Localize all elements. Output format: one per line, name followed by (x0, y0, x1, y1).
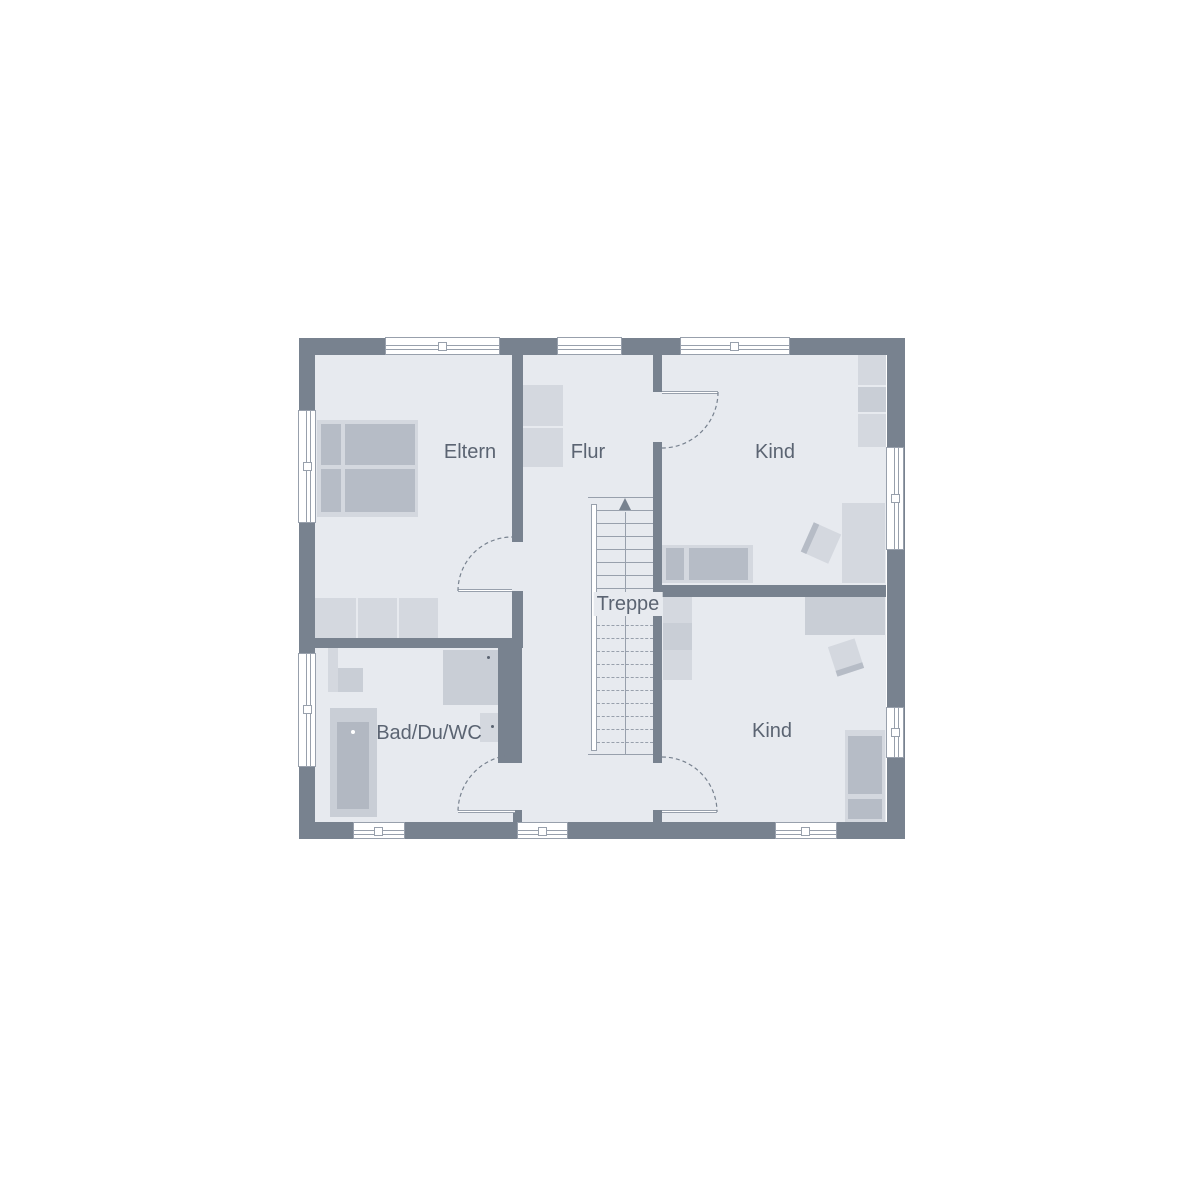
label-room-kind-top: Kind (755, 442, 795, 462)
window-handle-icon (438, 342, 447, 351)
toilet-wc (480, 713, 498, 742)
page-canvas: { "labels": { "eltern": "Eltern", "flur"… (0, 0, 1200, 1200)
wardrobe-kind-top (858, 387, 886, 412)
washbasin (338, 668, 363, 692)
stair-tread (597, 510, 653, 511)
wc-drain-icon (491, 725, 494, 728)
desk-kind-bottom (805, 597, 885, 635)
wall-eltern-bad (315, 638, 522, 648)
bed-pillow (666, 548, 684, 580)
window-handle-icon (891, 494, 900, 503)
window-left-bad (298, 653, 316, 767)
window-right-kind-top (886, 447, 904, 550)
wardrobe-kind-bottom (663, 597, 692, 623)
cabinet-divider (523, 426, 563, 428)
window-glazing-line (558, 345, 621, 346)
wardrobe-divider (356, 598, 358, 638)
bed-blanket (345, 424, 415, 465)
bed-pillow (321, 469, 341, 512)
window-bottom-kind (775, 822, 837, 839)
label-room-kind-bottom: Kind (752, 721, 792, 741)
bed-blanket (848, 736, 882, 794)
window-handle-icon (303, 462, 312, 471)
window-handle-icon (801, 827, 810, 836)
label-stairs-treppe: Treppe (594, 592, 663, 616)
wardrobe-kind-top (858, 414, 886, 447)
window-bottom-bad (353, 822, 405, 839)
bed-blanket (345, 469, 415, 512)
window-top-kind (680, 337, 790, 355)
wardrobe-kind-bottom (663, 623, 692, 650)
window-left-eltern (298, 410, 316, 523)
wall-eltern-flur-upper (512, 355, 523, 542)
window-handle-icon (891, 728, 900, 737)
window-handle-icon (730, 342, 739, 351)
wardrobe-divider (397, 598, 399, 638)
window-glazing-line (558, 349, 621, 350)
door-swing-eltern (458, 537, 512, 591)
window-handle-icon (374, 827, 383, 836)
label-room-flur: Flur (571, 442, 605, 462)
floor-plan: Eltern Flur Kind Treppe Kind Bad/Du/WC (299, 338, 905, 839)
door-swing-kind-bottom (662, 757, 717, 812)
wall-stub-kind-door (653, 810, 662, 822)
label-room-eltern: Eltern (444, 442, 496, 462)
stairs-center-line (625, 512, 626, 754)
wall-bad-right (498, 648, 522, 763)
wardrobe-kind-bottom (663, 650, 692, 680)
window-bottom-hall (517, 822, 568, 839)
label-room-bad: Bad/Du/WC (376, 723, 482, 743)
bathtub-inner (337, 722, 369, 809)
door-swing-bad (458, 755, 515, 812)
window-handle-icon (303, 705, 312, 714)
window-handle-icon (538, 827, 547, 836)
bed-pillow (321, 424, 341, 465)
stairs-up-arrow-icon (619, 498, 631, 510)
bed-blanket (689, 548, 748, 580)
wall-outer-right (887, 338, 905, 839)
washbasin-counter (328, 648, 338, 692)
window-top-eltern (385, 337, 500, 355)
desk-kind-top (842, 503, 885, 583)
stairs-handrail (591, 504, 597, 751)
window-top-flur (557, 337, 622, 355)
window-right-kind-bottom (886, 707, 904, 758)
wall-kind-kind (662, 585, 886, 597)
wall-flur-kind-upper (653, 355, 662, 392)
shower-drain-icon (487, 656, 490, 659)
bathtub-drain-icon (351, 730, 355, 734)
door-swing-kind-top (662, 392, 718, 448)
bed-pillow (848, 799, 882, 819)
wardrobe-kind-top (858, 355, 886, 385)
wardrobe-eltern (315, 598, 438, 638)
stairs-bottom-edge (588, 754, 653, 755)
